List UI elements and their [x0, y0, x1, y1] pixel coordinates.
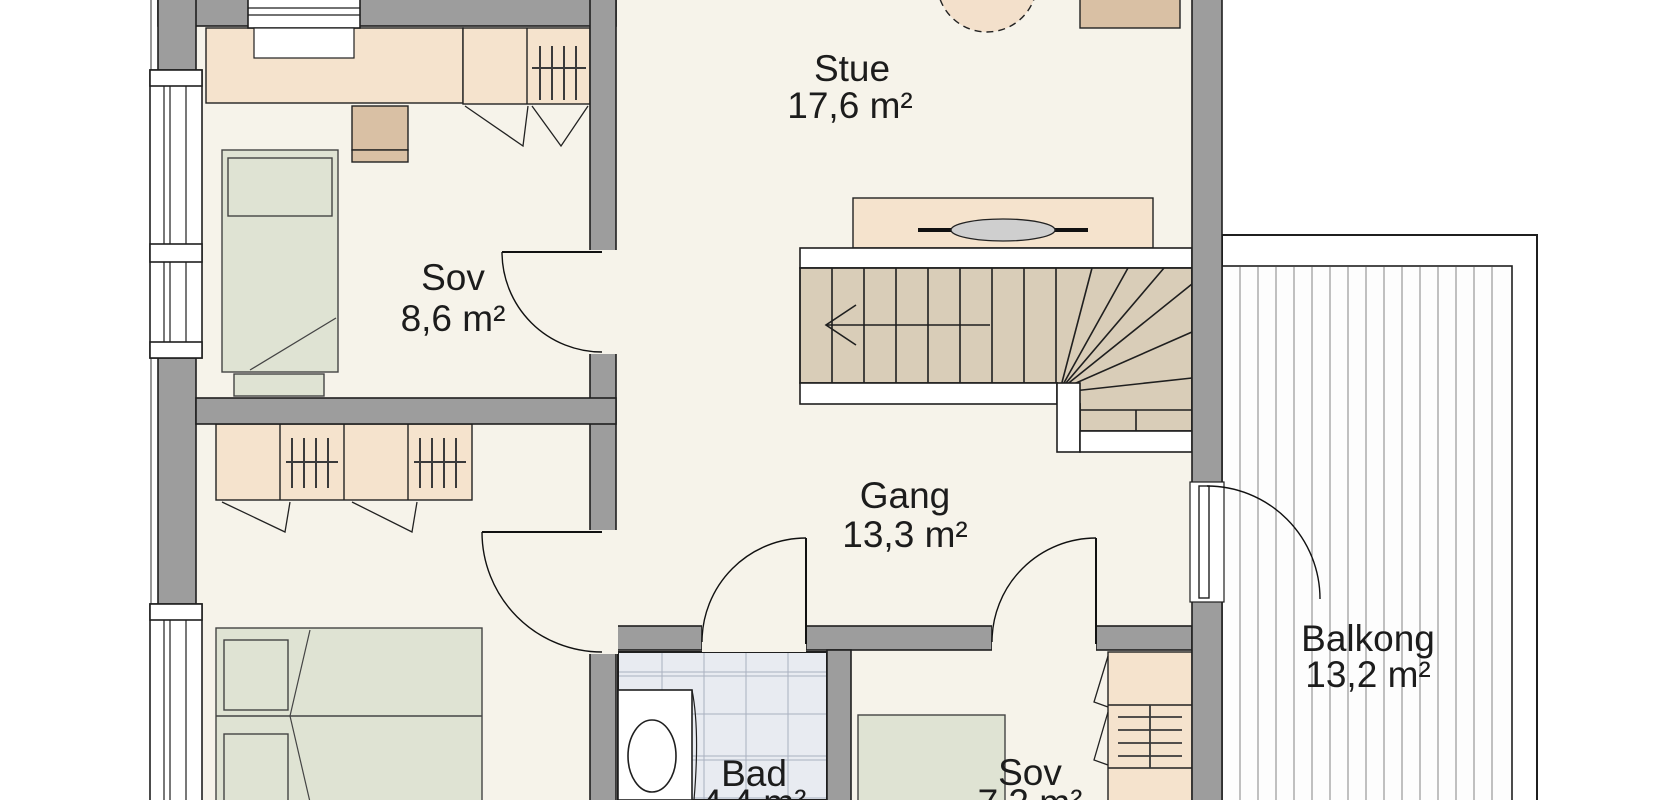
- wall-gang-bottom-1: [616, 626, 702, 650]
- label-bad-area: 4,4 m²: [702, 782, 807, 800]
- window-top: [248, 0, 360, 58]
- desk-chair-back: [352, 150, 408, 162]
- label-gang-name: Gang: [860, 475, 951, 516]
- window-top-recess: [254, 28, 354, 58]
- wall-right-upper: [1192, 0, 1222, 484]
- label-gang-area: 13,3 m²: [842, 514, 967, 555]
- bed-foot-box: [234, 374, 324, 396]
- balcony-glass-door: [1199, 486, 1209, 598]
- stair-rail-a: [800, 383, 1057, 404]
- label-sov2-area: 7,2 m²: [978, 782, 1083, 800]
- cabinet: [1080, 0, 1180, 28]
- label-sov1-area: 8,6 m²: [401, 298, 506, 339]
- wall-bad-sov-divider: [827, 650, 851, 800]
- balcony: [1222, 235, 1537, 800]
- label-stue-name: Stue: [814, 48, 890, 89]
- tv-base-icon: [951, 219, 1055, 241]
- wall-top: [158, 0, 616, 26]
- floor-plan: Sov 8,6 m² Stue 17,6 m² Gang 13,3 m² Bad…: [0, 0, 1670, 800]
- wall-gang-bottom-2: [806, 626, 992, 650]
- sink-basin-icon: [628, 720, 676, 792]
- label-sov1-name: Sov: [421, 257, 485, 298]
- wall-gang-bottom-3: [1096, 626, 1192, 650]
- wall-mid-upper: [590, 0, 616, 252]
- label-balkong-area: 13,2 m²: [1305, 654, 1430, 695]
- window-left-upper: [150, 70, 202, 358]
- label-balkong-name: Balkong: [1301, 618, 1435, 659]
- bathroom-vanity: [618, 690, 697, 800]
- stair-rail-b: [1057, 383, 1080, 452]
- desk-chair: [352, 106, 408, 150]
- wall-mid-center: [590, 352, 616, 532]
- label-stue-area: 17,6 m²: [787, 85, 912, 126]
- stair-rail-c: [1080, 431, 1192, 452]
- wall-between-left-rooms: [196, 398, 616, 424]
- wall-mid-lower: [590, 652, 616, 800]
- wall-right-lower: [1192, 598, 1222, 800]
- stair-top-rail: [800, 248, 1192, 268]
- bed-double: [216, 628, 482, 800]
- balcony-deck: [1222, 266, 1512, 800]
- bed-single: [222, 150, 338, 396]
- window-left-lower: [150, 604, 202, 800]
